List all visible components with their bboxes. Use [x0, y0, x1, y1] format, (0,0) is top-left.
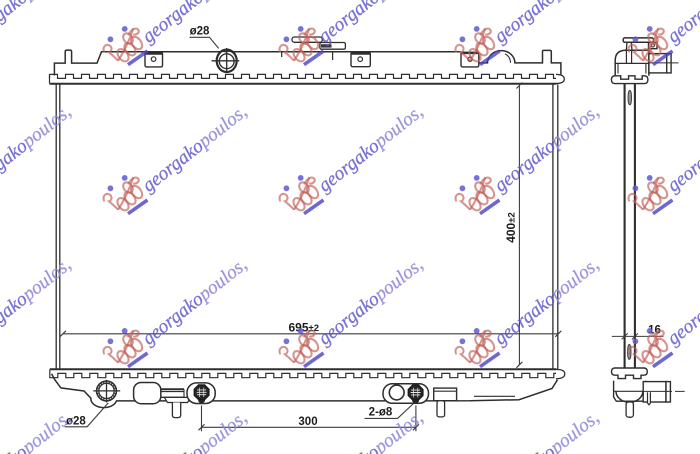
svg-text:ø28: ø28	[190, 26, 210, 38]
svg-text:2-ø8: 2-ø8	[369, 407, 393, 419]
svg-text:300: 300	[298, 416, 317, 428]
svg-text:400±2: 400±2	[504, 212, 518, 243]
